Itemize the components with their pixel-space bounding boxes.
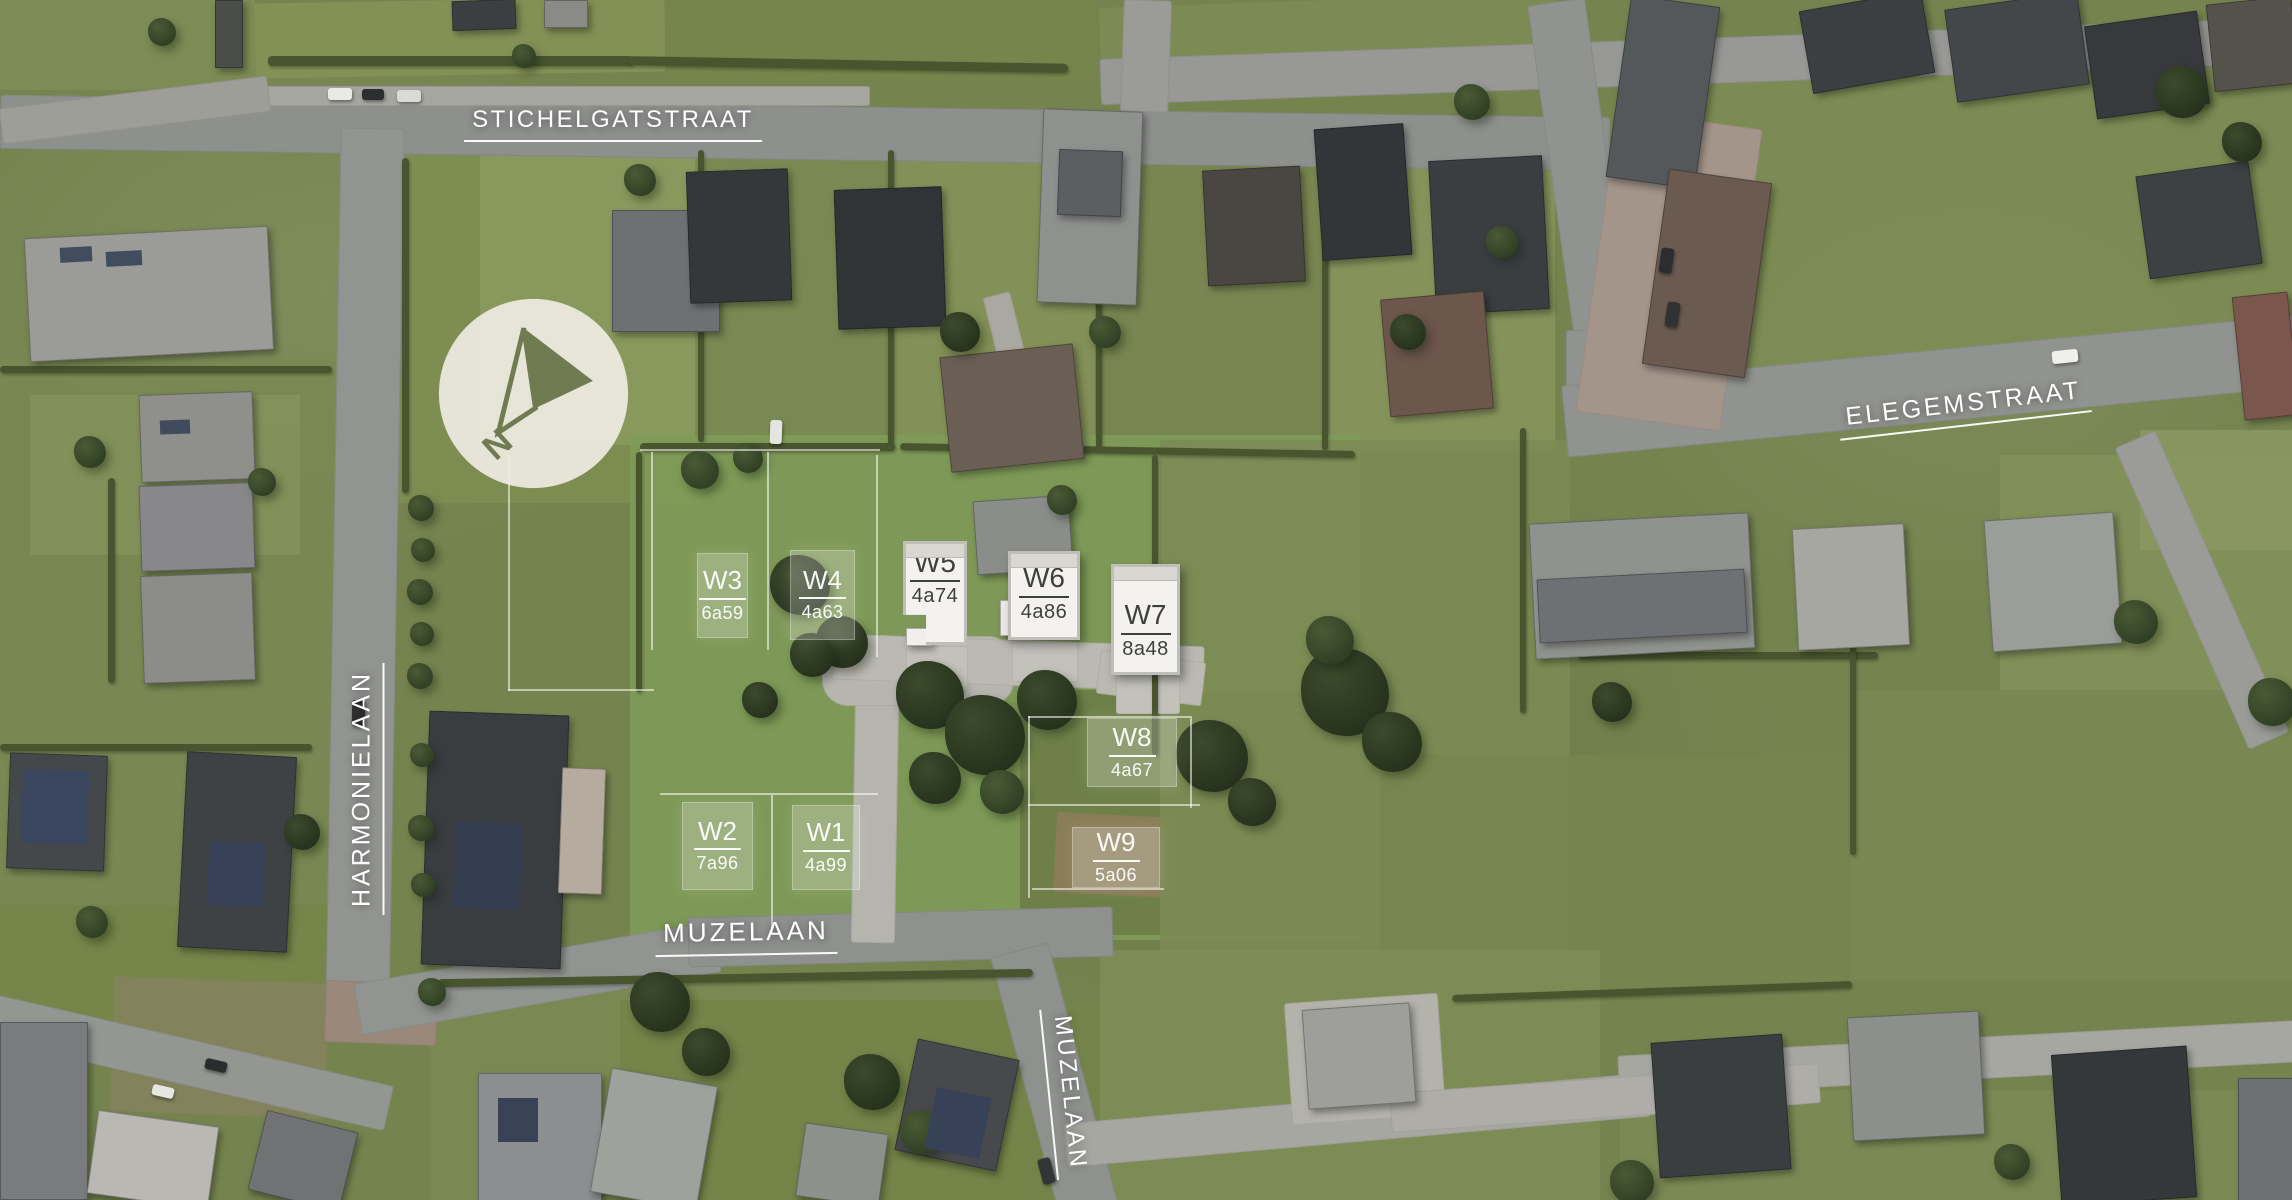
parked-car — [328, 88, 352, 100]
tree — [248, 468, 276, 496]
solar-panel-array — [498, 1098, 538, 1142]
tree — [1047, 485, 1077, 515]
road-surface — [1116, 676, 1180, 714]
plot-area: 4a86 — [1021, 601, 1068, 624]
plot-id: W7 — [1121, 600, 1171, 634]
tree — [624, 164, 656, 196]
building-roof — [139, 482, 256, 572]
tree — [411, 873, 435, 897]
tree — [411, 538, 435, 562]
plot-boundary-line — [1028, 716, 1030, 898]
building-roof — [478, 1073, 602, 1200]
building-roof — [140, 572, 256, 684]
tree — [76, 906, 108, 938]
plot-marker-w7[interactable]: W7 8a48 — [1111, 564, 1180, 675]
building-roof — [1380, 291, 1494, 418]
building-roof — [2232, 291, 2292, 420]
plot-area: 4a74 — [912, 585, 959, 608]
building-roof — [1202, 166, 1306, 287]
building-roof — [1984, 512, 2123, 653]
roof-cap — [1114, 567, 1177, 581]
tree — [1486, 226, 1518, 258]
building-roof — [1314, 123, 1413, 261]
hedge-row — [1850, 645, 1856, 855]
building-roof — [1057, 149, 1123, 217]
plot-boundary-line — [767, 452, 769, 650]
street-label-stichelgatstraat: STICHELGATSTRAAT — [464, 106, 762, 142]
tree — [1592, 682, 1632, 722]
plot-boundary-line — [640, 449, 880, 451]
tree — [410, 622, 434, 646]
tree — [407, 579, 433, 605]
street-label-muzelaan-horizontal: MUZELAAN — [655, 915, 837, 957]
plot-marker-w2[interactable]: W2 7a96 — [682, 802, 753, 890]
hedge-row — [0, 744, 312, 751]
plot-boundary-line — [508, 689, 654, 691]
plot-boundary-line — [660, 793, 878, 795]
plot-area: 4a67 — [1111, 760, 1153, 781]
plot-marker-w4[interactable]: W4 4a63 — [790, 550, 855, 640]
building-roof — [138, 391, 255, 483]
building-roof — [451, 0, 516, 31]
tree — [940, 312, 980, 352]
building-roof — [1536, 569, 1747, 644]
plot-marker-w6[interactable]: W6 4a86 — [1008, 551, 1080, 640]
building-roof — [558, 767, 606, 894]
parked-car — [397, 90, 421, 102]
tree — [408, 495, 434, 521]
plot-area: 7a96 — [696, 853, 738, 874]
building-roof — [834, 186, 947, 330]
building-roof — [87, 1110, 220, 1200]
building-roof — [24, 226, 274, 363]
building-roof — [2051, 1045, 2197, 1200]
plot-marker-w3[interactable]: W3 6a59 — [697, 553, 748, 638]
tree — [407, 663, 433, 689]
hedge-row — [636, 452, 642, 692]
building-roof — [544, 0, 588, 28]
tree — [742, 682, 778, 718]
plot-boundary-line — [1032, 888, 1164, 890]
tree — [909, 752, 961, 804]
plot-marker-w9[interactable]: W9 5a06 — [1072, 827, 1160, 888]
plot-marker-w8[interactable]: W8 4a67 — [1087, 718, 1177, 787]
plot-id: W4 — [799, 567, 846, 599]
building-roof — [795, 1123, 888, 1200]
building-roof — [590, 1068, 718, 1200]
tree — [1306, 616, 1354, 664]
tree — [2248, 678, 2292, 726]
tree — [630, 972, 690, 1032]
plot-id: W8 — [1109, 724, 1156, 756]
building-roof — [215, 0, 243, 68]
plot-boundary-line — [651, 452, 653, 650]
building-roof — [0, 1022, 88, 1200]
plot-boundary-line — [1028, 804, 1200, 806]
compass-rose: N — [436, 296, 631, 491]
tree — [74, 436, 106, 468]
street-label-harmonielaan: HARMONIELAAN — [348, 663, 385, 915]
hedge-row — [1520, 428, 1526, 713]
tree — [408, 815, 434, 841]
plot-area: 4a63 — [801, 602, 843, 623]
plot-area: 5a06 — [1095, 865, 1137, 886]
building-roof — [686, 168, 793, 303]
tree — [1994, 1144, 2030, 1180]
hedge-row — [402, 158, 409, 493]
plot-marker-w1[interactable]: W1 4a99 — [792, 805, 860, 890]
plot-boundary-line — [876, 455, 878, 657]
plot-id: W1 — [803, 819, 850, 851]
solar-panel-array — [206, 841, 265, 908]
plot-id: W3 — [699, 567, 746, 599]
tree — [1390, 314, 1426, 350]
tree — [512, 44, 536, 68]
solar-panel-array — [106, 250, 143, 267]
building-roof — [2135, 161, 2262, 280]
plot-id: W9 — [1093, 829, 1140, 861]
tree — [980, 770, 1024, 814]
tree — [418, 978, 446, 1006]
tree — [733, 443, 763, 473]
tree — [284, 814, 320, 850]
parked-car — [770, 420, 783, 444]
field-parcel — [1850, 690, 2292, 980]
tree — [2114, 600, 2158, 644]
hedge-row — [0, 366, 332, 373]
plot-area: 8a48 — [1122, 638, 1169, 661]
tree — [2156, 66, 2208, 118]
building-roof — [2238, 1078, 2292, 1200]
plot-area: 6a59 — [701, 603, 743, 624]
building-roof — [2206, 0, 2292, 92]
plot-boundary-line — [1190, 716, 1192, 808]
tree — [1228, 778, 1276, 826]
tree — [148, 18, 176, 46]
tree — [682, 1028, 730, 1076]
parked-car — [362, 89, 384, 100]
tree — [1089, 316, 1121, 348]
tree — [1362, 712, 1422, 772]
hedge-row — [268, 56, 633, 66]
tree — [2222, 122, 2262, 162]
tree — [1017, 670, 1077, 730]
solar-panel-array — [454, 822, 523, 910]
building-roof — [1650, 1034, 1791, 1179]
tree — [1454, 84, 1490, 120]
plot-id: W2 — [694, 818, 741, 850]
roof-cap — [1011, 554, 1077, 568]
solar-panel-array — [160, 419, 190, 434]
plot-area: 4a99 — [805, 855, 847, 876]
plot-boundary-line — [771, 795, 773, 933]
solar-panel-array — [21, 769, 90, 845]
building-roof — [1302, 1002, 1417, 1109]
hedge-row — [108, 478, 115, 683]
aerial-site-map: N STICHELGATSTRAAT ELEGEMSTRAAT HARMONIE… — [0, 0, 2292, 1200]
solar-panel-array — [60, 246, 93, 263]
building-roof — [939, 343, 1084, 472]
building-roof — [1847, 1011, 1985, 1142]
plot-id: W6 — [1019, 563, 1069, 597]
road-surface — [1120, 0, 1172, 113]
building-roof — [247, 1110, 358, 1200]
parked-car — [2051, 349, 2078, 365]
building-roof — [1792, 523, 1910, 651]
tree — [844, 1054, 900, 1110]
roof-cap — [906, 544, 964, 558]
tree — [681, 451, 719, 489]
tree — [945, 695, 1025, 775]
tree — [410, 743, 434, 767]
